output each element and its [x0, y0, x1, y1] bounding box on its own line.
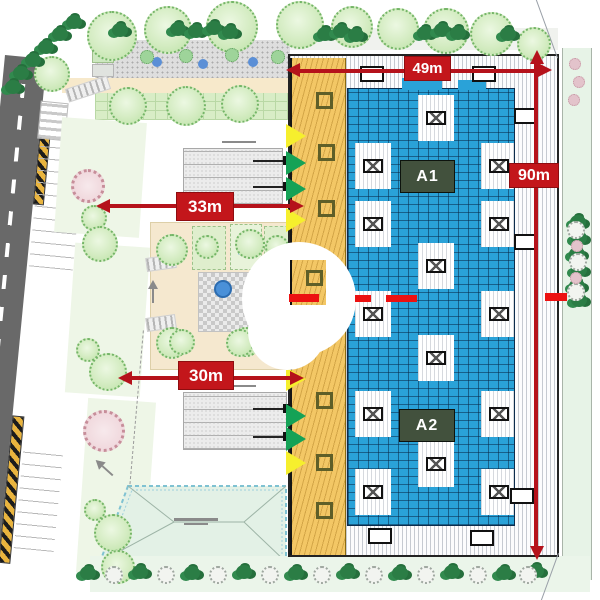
skylight-icon: [363, 307, 383, 321]
skylight-icon: [489, 159, 509, 173]
parking-lot-lower: [183, 392, 287, 450]
garden-patch: [65, 243, 150, 398]
roof-courtyard: [418, 441, 454, 487]
direction-arrow-icon: [148, 280, 160, 306]
skylight-icon: [363, 407, 383, 421]
dimension-label-90m: 90m: [509, 163, 559, 188]
block-label-a2: A2: [399, 409, 455, 442]
hedge-tree-icon: [170, 22, 186, 36]
rooflight-icon: [316, 454, 333, 471]
green-buffer-bottom: [90, 556, 590, 592]
hedge-tree-icon: [222, 25, 238, 39]
roof-courtyard: [418, 335, 454, 381]
hedge-tree-icon: [188, 24, 204, 38]
hedge-tree-icon: [52, 27, 68, 41]
block-a1-text: A1: [416, 168, 438, 186]
dimension-arrow-down: [530, 546, 544, 560]
rooflight-icon: [316, 92, 333, 109]
skylight-icon: [510, 488, 534, 504]
water-feature: [238, 250, 246, 255]
skylight-icon: [489, 307, 509, 321]
parking-stalls: [14, 449, 63, 552]
dimension-arrow-right: [538, 63, 552, 77]
dim-30m-text: 30m: [189, 366, 223, 386]
site-plan: A1 A2 33m 30m 49m 90m: [0, 0, 600, 600]
parking-tick: [253, 408, 287, 410]
garden-plot: [92, 48, 114, 63]
garden-path-band: [95, 40, 290, 78]
residential-block: [347, 88, 515, 526]
dimension-arrow-right: [290, 199, 304, 213]
roof-courtyard: [481, 201, 515, 247]
skylight-icon: [426, 457, 446, 471]
dimension-arrow-right: [290, 371, 304, 385]
skylight-icon: [363, 485, 383, 499]
hedge-tree-icon: [38, 40, 54, 54]
arrow-stem: [152, 289, 154, 303]
roof-courtyard: [481, 391, 515, 437]
rooflight-icon: [316, 392, 333, 409]
green-buffer-right: [562, 48, 592, 580]
dim-90m-text: 90m: [518, 167, 550, 185]
skylight-icon: [470, 530, 494, 546]
block-label-a1: A1: [400, 160, 455, 193]
skylight-icon: [426, 111, 446, 125]
skylight-icon: [368, 528, 392, 544]
planting-bed: [192, 226, 226, 270]
plaza-circle: [83, 410, 125, 452]
lawn-band: [95, 93, 290, 120]
skylight-icon: [363, 217, 383, 231]
roof-courtyard: [418, 95, 454, 141]
plaza-circle: [71, 169, 105, 203]
arrow-stem: [102, 465, 114, 476]
rooflight-icon: [306, 270, 323, 286]
hedge-tree-icon: [112, 23, 128, 37]
roof-courtyard: [355, 143, 391, 189]
dim-33m-text: 33m: [188, 197, 222, 217]
dimension-label-33m: 33m: [176, 192, 234, 221]
red-dashed-line-segment: [289, 294, 319, 302]
parking-tick: [253, 186, 287, 188]
skylight-icon: [426, 259, 446, 273]
parking-tick: [253, 436, 287, 438]
skylight-icon: [426, 351, 446, 365]
skylight-icon: [489, 407, 509, 421]
arrow-head: [148, 280, 158, 289]
rooflight-icon: [316, 502, 333, 519]
dim-49m-text: 49m: [412, 60, 442, 77]
skylight-icon: [363, 159, 383, 173]
water-feature: [246, 238, 253, 242]
roof-courtyard: [355, 391, 391, 437]
roof-courtyard: [355, 201, 391, 247]
skylight-icon: [489, 217, 509, 231]
rooflight-icon: [318, 200, 335, 217]
perimeter-path: [290, 28, 558, 50]
garden-plot: [92, 64, 114, 77]
roof-courtyard: [418, 243, 454, 289]
small-caption: [222, 141, 256, 143]
roof-courtyard: [481, 291, 515, 337]
red-dashed-line-segment: [355, 295, 371, 302]
hedge-tree-icon: [206, 21, 222, 35]
dimension-line-90m: [534, 62, 538, 548]
hedge-tree-icon: [66, 15, 82, 29]
pond: [214, 280, 232, 298]
skylight-icon: [489, 485, 509, 499]
parking-tick: [253, 160, 287, 162]
dimension-label-49m: 49m: [404, 56, 451, 81]
road: [0, 55, 47, 600]
block-a2-text: A2: [416, 417, 438, 435]
dimension-label-30m: 30m: [178, 361, 234, 390]
rooflight-icon: [318, 144, 335, 161]
roof-courtyard: [355, 469, 391, 515]
red-dashed-line-segment: [545, 293, 567, 301]
red-dashed-line-segment: [386, 295, 417, 302]
